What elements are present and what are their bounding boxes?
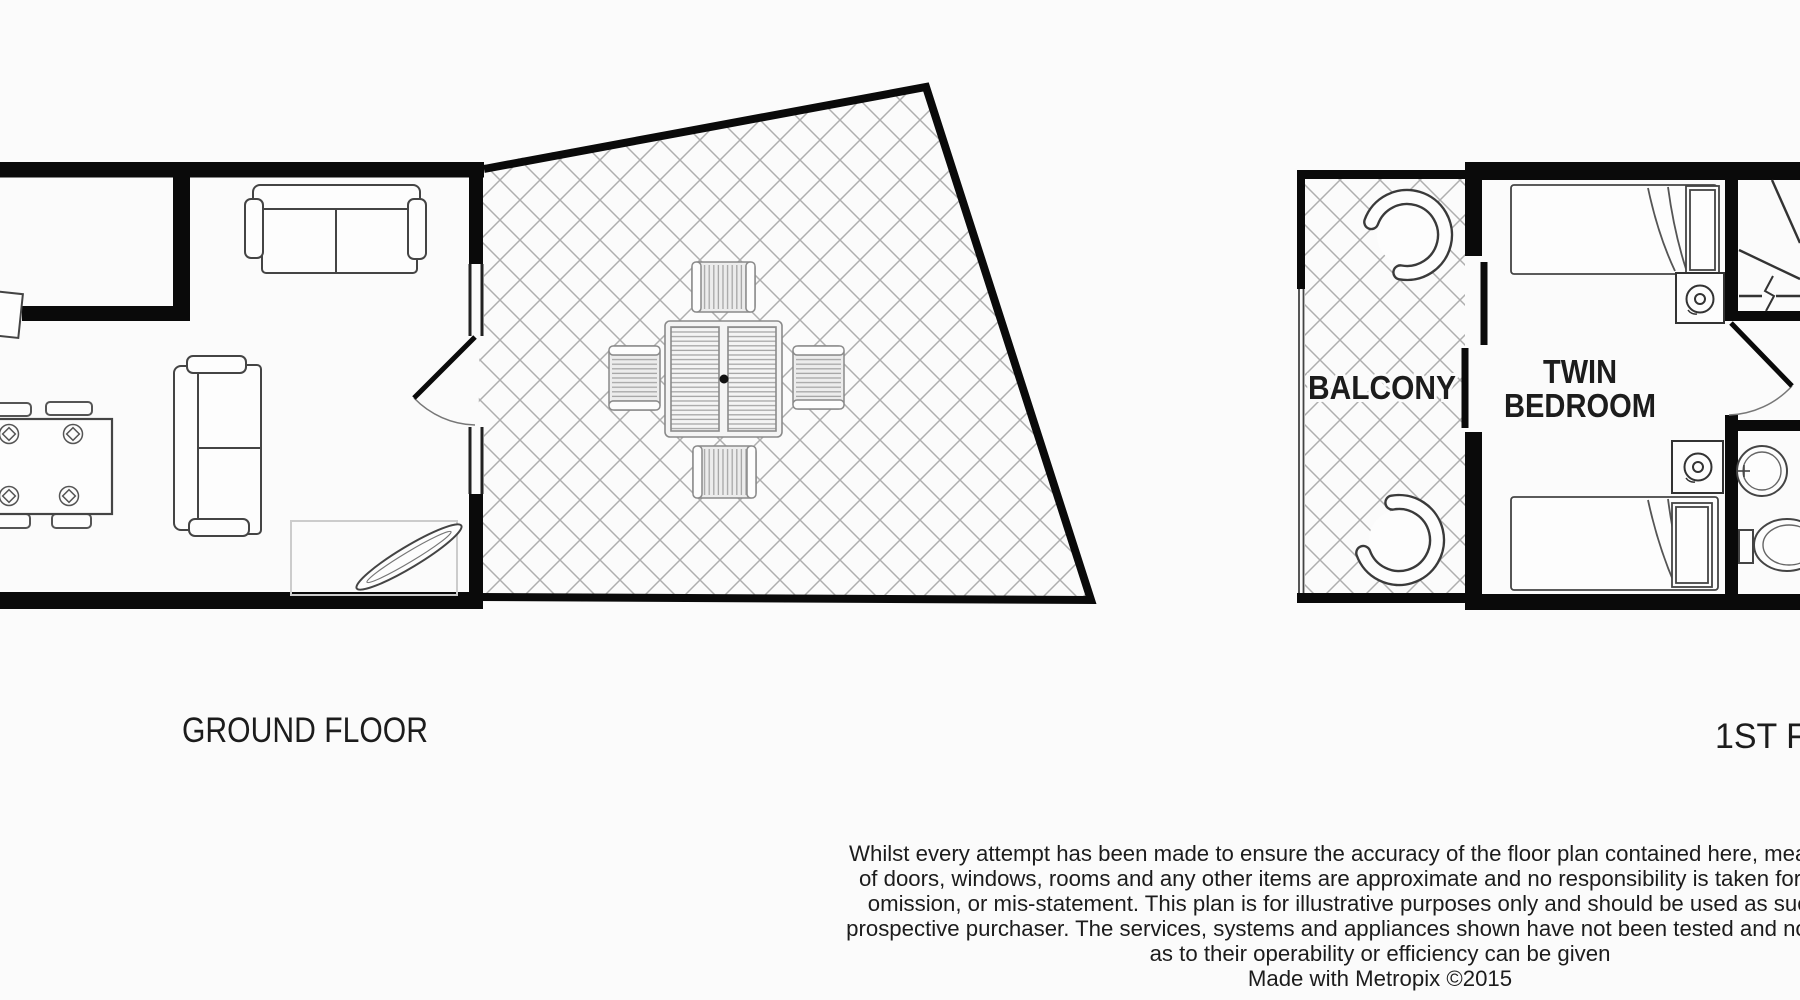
svg-text:omission, or mis-statement. Th: omission, or mis-statement. This plan is… (868, 891, 1800, 916)
svg-text:BALCONY: BALCONY (1308, 369, 1456, 406)
svg-text:BEDROOM: BEDROOM (1504, 387, 1656, 424)
svg-text:1ST FLOOR: 1ST FLOOR (1715, 717, 1800, 756)
svg-text:of doors, windows, rooms and a: of doors, windows, rooms and any other i… (859, 866, 1800, 891)
svg-text:TWIN: TWIN (1543, 353, 1617, 390)
svg-text:GROUND FLOOR: GROUND FLOOR (182, 711, 428, 750)
svg-text:Made with Metropix ©2015: Made with Metropix ©2015 (1248, 966, 1512, 991)
svg-text:as to their operability or eff: as to their operability or efficiency ca… (1150, 941, 1611, 966)
svg-text:Whilst every attempt has been: Whilst every attempt has been made to en… (849, 841, 1800, 866)
svg-text:prospective purchaser. The ser: prospective purchaser. The services, sys… (846, 916, 1800, 941)
